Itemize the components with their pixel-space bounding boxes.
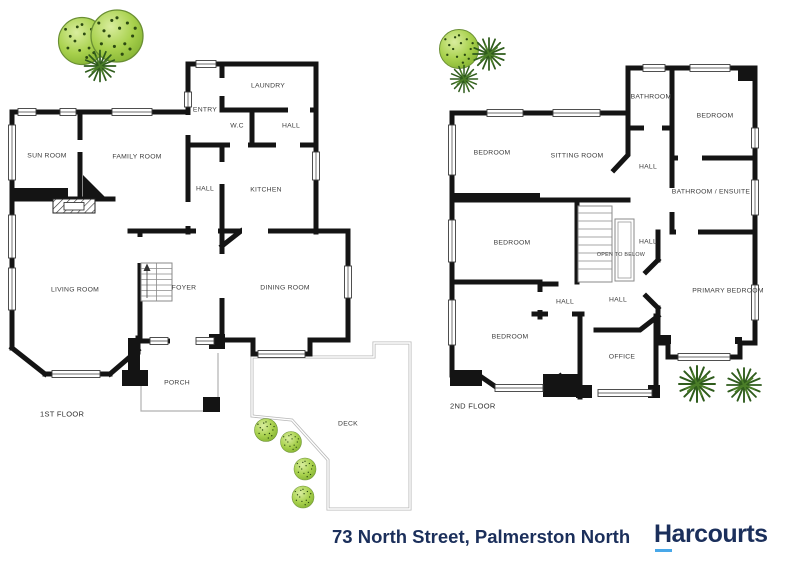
bush-icon <box>451 66 478 93</box>
room-label-porch: PORCH <box>164 380 190 387</box>
room-label-laundry: LAUNDRY <box>251 83 285 90</box>
room-label-bedroom-mid: BEDROOM <box>494 240 531 247</box>
room-label-open-to-below: OPEN TO BELOW <box>597 252 645 258</box>
room-label-hall-stair: HALL <box>639 239 657 246</box>
bush-icon <box>473 38 505 70</box>
harcourts-logo-underline <box>655 549 672 552</box>
harcourts-logo: Harcourts <box>654 520 768 549</box>
first-floor-openings <box>76 78 310 345</box>
property-address: 73 North Street, Palmerston North <box>332 526 630 548</box>
room-label-bedroom-top-left: BEDROOM <box>474 150 511 157</box>
room-label-kitchen: KITCHEN <box>250 187 282 194</box>
room-label-hall-small: HALL <box>556 299 574 306</box>
bush-icon <box>85 51 116 82</box>
first-floor-stairs <box>141 263 172 301</box>
room-label-family-room: FAMILY ROOM <box>112 154 161 161</box>
room-label-deck: DECK <box>338 421 358 428</box>
tree-icon <box>440 30 479 69</box>
harcourts-logo-text: Harcourts <box>654 520 768 548</box>
room-label-office: OFFICE <box>609 354 635 361</box>
floorplan-page: SUN ROOM FAMILY ROOM LAUNDRY ENTRY W.C H… <box>0 0 800 566</box>
room-label-bedroom-bottom: BEDROOM <box>492 334 529 341</box>
room-label-hall-upper: HALL <box>282 123 300 130</box>
room-label-foyer: FOYER <box>172 285 197 292</box>
second-floor-title: 2ND FLOOR <box>450 402 496 411</box>
deck-bush-icon <box>294 458 316 480</box>
first-floor-title: 1ST FLOOR <box>40 410 84 419</box>
room-label-hall-top: HALL <box>639 164 657 171</box>
room-label-entry: ENTRY <box>193 107 217 114</box>
first-floor-plan <box>9 61 411 510</box>
room-label-sitting-room: SITTING ROOM <box>551 153 604 160</box>
room-label-dining-room: DINING ROOM <box>260 285 310 292</box>
bush-icon <box>727 368 761 402</box>
room-label-sun-room: SUN ROOM <box>27 153 66 160</box>
room-label-bathroom: BATHROOM <box>631 94 672 101</box>
deck-bush-icon <box>292 486 314 508</box>
deck-bush-icon <box>255 419 278 442</box>
room-label-hall-lower: HALL <box>609 297 627 304</box>
fireplace <box>53 199 95 213</box>
bush-icon <box>679 366 715 402</box>
room-label-bathroom-ensuite: BATHROOM / ENSUITE <box>672 189 750 196</box>
room-label-living-room: LIVING ROOM <box>51 287 99 294</box>
floorplan-graphics <box>0 0 800 566</box>
room-label-bedroom-top-right: BEDROOM <box>697 113 734 120</box>
room-label-wc: W.C <box>230 123 244 130</box>
room-label-primary-bedroom: PRIMARY BEDROOM <box>692 288 763 295</box>
second-floor-stairs <box>578 206 634 282</box>
tree-icon <box>91 10 143 62</box>
room-label-hall: HALL <box>196 186 214 193</box>
deck-bush-icon <box>281 432 302 453</box>
